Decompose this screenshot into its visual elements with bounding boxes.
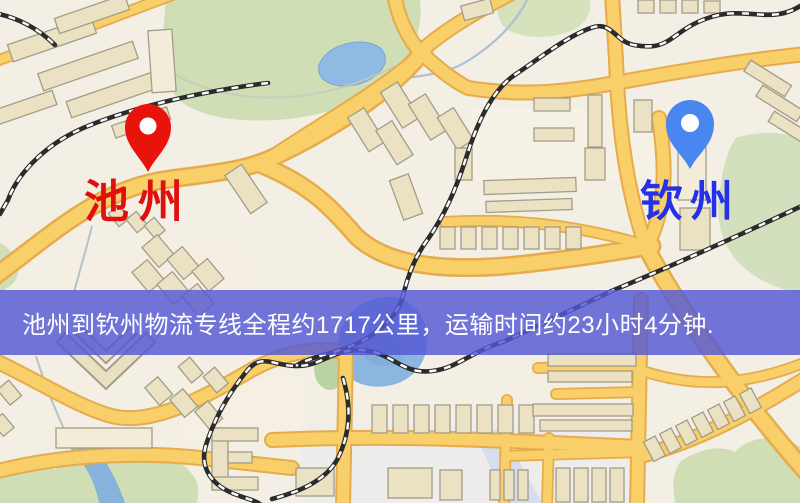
- origin-pin-hole: [140, 118, 157, 135]
- map-graphic: [0, 0, 800, 503]
- route-banner-text: 池州到钦州物流专线全程约1717公里，运输时间约23小时4分钟.: [22, 305, 714, 340]
- route-banner: 池州到钦州物流专线全程约1717公里，运输时间约23小时4分钟.: [0, 290, 800, 355]
- route-map: 池州 钦州 池州到钦州物流专线全程约1717公里，运输时间约23小时4分钟.: [0, 0, 800, 503]
- destination-label: 钦州: [640, 181, 740, 224]
- destination-pin-hole: [681, 114, 699, 132]
- origin-label: 池州: [84, 179, 192, 224]
